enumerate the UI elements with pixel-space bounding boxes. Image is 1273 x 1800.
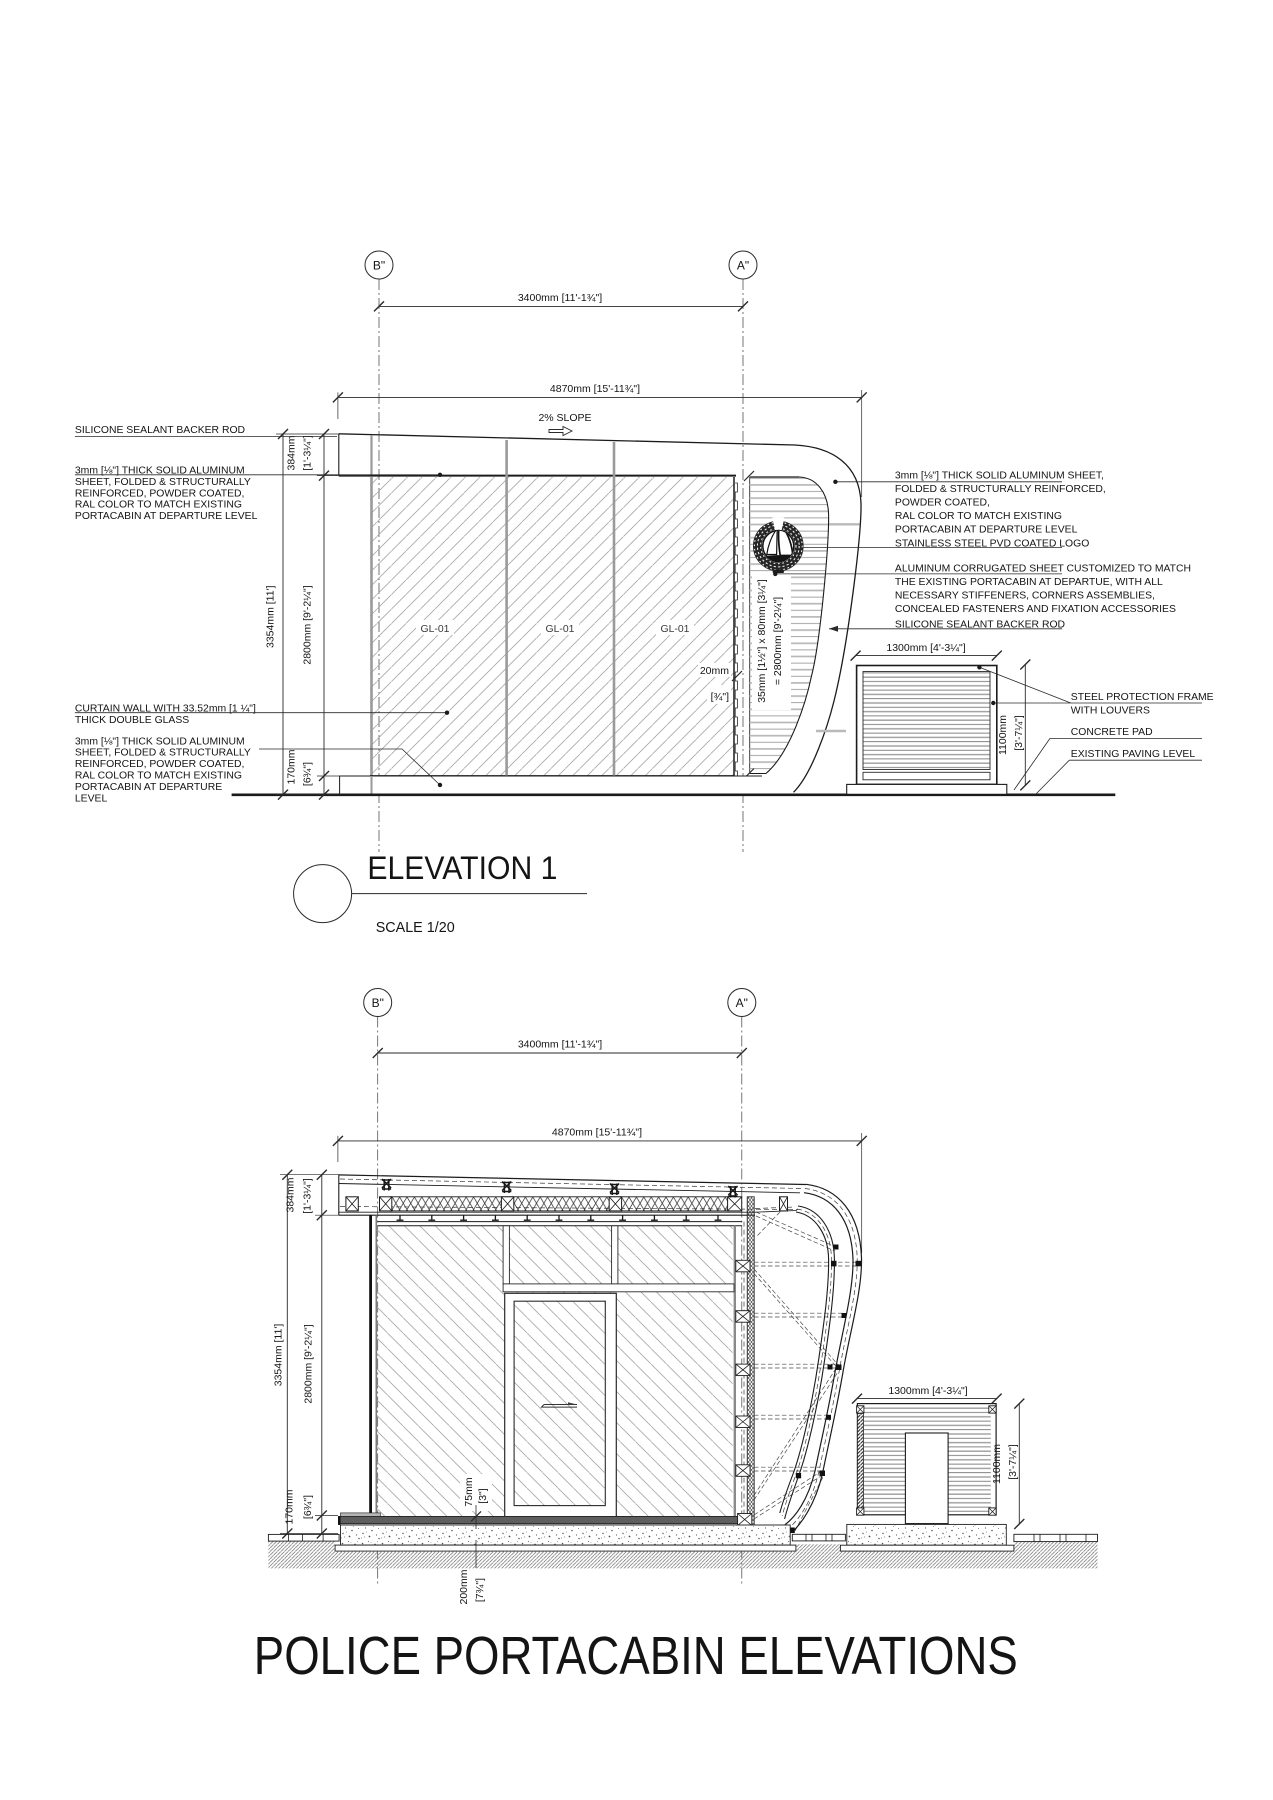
- svg-text:2% SLOPE: 2% SLOPE: [538, 412, 591, 424]
- svg-text:THE EXISTING PORTACABIN AT DEP: THE EXISTING PORTACABIN AT DEPARTUE, WIT…: [895, 577, 1163, 588]
- svg-text:3354mm [11']: 3354mm [11']: [273, 1324, 285, 1387]
- svg-text:GL-01: GL-01: [421, 624, 450, 635]
- svg-text:GL-01: GL-01: [546, 624, 575, 635]
- svg-text:ALUMINUM CORRUGATED SHEET CUST: ALUMINUM CORRUGATED SHEET CUSTOMIZED TO …: [895, 564, 1191, 575]
- svg-text:[3'-7¼"]: [3'-7¼"]: [1013, 715, 1025, 751]
- svg-text:STEEL PROTECTION FRAME: STEEL PROTECTION FRAME: [1071, 692, 1214, 703]
- svg-text:RAL COLOR TO MATCH EXISTING: RAL COLOR TO MATCH EXISTING: [75, 771, 242, 782]
- svg-text:FOLDED & STRUCTURALLY REINFORC: FOLDED & STRUCTURALLY REINFORCED,: [895, 484, 1106, 495]
- svg-text:A": A": [737, 259, 749, 273]
- svg-text:B": B": [373, 259, 385, 273]
- svg-text:REINFORCED, POWDER COATED,: REINFORCED, POWDER COATED,: [75, 759, 245, 770]
- svg-text:1300mm [4'-3¼"]: 1300mm [4'-3¼"]: [888, 1385, 967, 1397]
- svg-text:[6¾"]: [6¾"]: [302, 762, 314, 786]
- svg-text:PORTACABIN AT DEPARTURE: PORTACABIN AT DEPARTURE: [75, 782, 222, 793]
- svg-text:3400mm [11'-1¾"]: 3400mm [11'-1¾"]: [518, 1039, 602, 1051]
- svg-text:A": A": [736, 996, 748, 1010]
- svg-text:1300mm [4'-3¼"]: 1300mm [4'-3¼"]: [886, 642, 965, 654]
- svg-text:3400mm [11'-1¾"]: 3400mm [11'-1¾"]: [518, 292, 602, 304]
- svg-text:SHEET, FOLDED & STRUCTURALLY: SHEET, FOLDED & STRUCTURALLY: [75, 748, 251, 759]
- svg-text:[3'-7¼"]: [3'-7¼"]: [1007, 1444, 1019, 1480]
- svg-text:[7¾"]: [7¾"]: [474, 1578, 486, 1602]
- svg-text:= 2800mm [9'-2¼"]: = 2800mm [9'-2¼"]: [772, 597, 784, 685]
- svg-text:3354mm [11']: 3354mm [11']: [265, 585, 277, 648]
- svg-text:3mm [⅛"] THICK SOLID ALUMINUM: 3mm [⅛"] THICK SOLID ALUMINUM SHEET,: [895, 471, 1104, 482]
- svg-text:ELEVATION 1: ELEVATION 1: [367, 850, 557, 886]
- svg-text:EXISTING PAVING LEVEL: EXISTING PAVING LEVEL: [1071, 749, 1196, 760]
- svg-text:[6¾"]: [6¾"]: [302, 1495, 314, 1519]
- svg-text:[1'-3¼"]: [1'-3¼"]: [302, 435, 314, 471]
- svg-text:POWDER COATED,: POWDER COATED,: [895, 498, 990, 509]
- svg-text:LEVEL: LEVEL: [75, 793, 108, 804]
- svg-text:4870mm [15'-11¾"]: 4870mm [15'-11¾"]: [550, 383, 640, 395]
- svg-text:2800mm [9'-2¼"]: 2800mm [9'-2¼"]: [302, 1324, 314, 1403]
- svg-text:75mm: 75mm: [463, 1477, 475, 1506]
- svg-text:SILICONE SEALANT BACKER ROD: SILICONE SEALANT BACKER ROD: [75, 425, 245, 436]
- svg-text:PORTACABIN AT DEPARTURE LEVEL: PORTACABIN AT DEPARTURE LEVEL: [895, 525, 1078, 536]
- svg-text:200mm: 200mm: [458, 1569, 470, 1604]
- svg-text:3mm [⅛"] THICK SOLID ALUMINUM: 3mm [⅛"] THICK SOLID ALUMINUM: [75, 736, 245, 747]
- svg-text:CONCEALED FASTENERS AND FIXATI: CONCEALED FASTENERS AND FIXATION ACCESSO…: [895, 604, 1176, 615]
- svg-text:170mm: 170mm: [286, 749, 298, 784]
- svg-text:CONCRETE PAD: CONCRETE PAD: [1071, 727, 1153, 738]
- svg-text:RAL COLOR TO MATCH EXISTING: RAL COLOR TO MATCH EXISTING: [895, 511, 1062, 522]
- svg-text:[1'-3¼"]: [1'-3¼"]: [301, 1178, 313, 1214]
- svg-text:SCALE 1/20: SCALE 1/20: [376, 920, 455, 936]
- svg-text:SHEET, FOLDED & STRUCTURALLY: SHEET, FOLDED & STRUCTURALLY: [75, 477, 251, 488]
- svg-text:1100mm: 1100mm: [991, 1444, 1003, 1484]
- svg-text:20mm: 20mm: [700, 665, 729, 677]
- svg-text:35mm [1½"] x 80mm [3¼"]: 35mm [1½"] x 80mm [3¼"]: [756, 579, 768, 703]
- svg-text:4870mm [15'-11¾"]: 4870mm [15'-11¾"]: [552, 1127, 642, 1139]
- svg-text:384mm: 384mm: [286, 435, 298, 470]
- svg-text:PORTACABIN AT DEPARTURE LEVEL: PORTACABIN AT DEPARTURE LEVEL: [75, 511, 258, 522]
- svg-text:NECESSARY STIFFENERS, CORNERS: NECESSARY STIFFENERS, CORNERS ASSEMBLIES…: [895, 591, 1155, 602]
- svg-text:B": B": [372, 996, 384, 1010]
- svg-text:2800mm [9'-2¼"]: 2800mm [9'-2¼"]: [302, 585, 314, 664]
- svg-text:GL-01: GL-01: [661, 624, 690, 635]
- svg-text:[¾"]: [¾"]: [711, 691, 729, 703]
- svg-text:THICK DOUBLE GLASS: THICK DOUBLE GLASS: [75, 715, 189, 726]
- svg-text:RAL COLOR TO MATCH EXISTING: RAL COLOR TO MATCH EXISTING: [75, 500, 242, 511]
- svg-text:1100mm: 1100mm: [997, 715, 1009, 755]
- svg-text:[3"]: [3"]: [477, 1488, 489, 1503]
- svg-text:384mm: 384mm: [285, 1177, 297, 1212]
- svg-text:POLICE PORTACABIN ELEVATIONS: POLICE PORTACABIN ELEVATIONS: [254, 1627, 1018, 1686]
- svg-text:WITH LOUVERS: WITH LOUVERS: [1071, 706, 1150, 717]
- svg-text:REINFORCED, POWDER COATED,: REINFORCED, POWDER COATED,: [75, 488, 245, 499]
- svg-text:170mm: 170mm: [284, 1489, 296, 1524]
